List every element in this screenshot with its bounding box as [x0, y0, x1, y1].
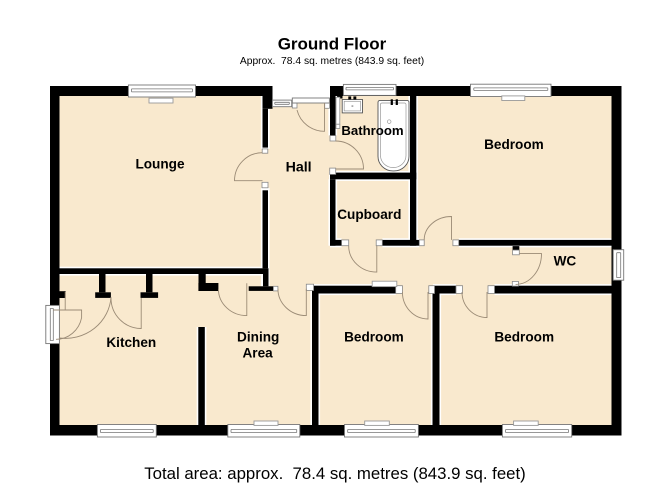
- svg-text:Bathroom: Bathroom: [341, 123, 403, 138]
- svg-text:Dining: Dining: [237, 330, 279, 345]
- svg-text:Bedroom: Bedroom: [484, 137, 544, 152]
- svg-text:Approx. 78.4 sq. metres (843.: Approx. 78.4 sq. metres (843.9 sq. feet): [240, 56, 424, 67]
- svg-text:Bedroom: Bedroom: [494, 330, 554, 345]
- svg-text:Cupboard: Cupboard: [337, 207, 401, 222]
- svg-text:Ground Floor: Ground Floor: [278, 35, 387, 54]
- svg-text:Kitchen: Kitchen: [106, 335, 156, 350]
- svg-text:Area: Area: [242, 345, 273, 360]
- svg-text:WC: WC: [554, 254, 577, 269]
- svg-text:Hall: Hall: [286, 159, 312, 175]
- svg-text:Bedroom: Bedroom: [344, 330, 404, 345]
- svg-text:Total area: approx. 78.4 sq.: Total area: approx. 78.4 sq. metres (843…: [144, 464, 526, 483]
- svg-text:Lounge: Lounge: [135, 156, 185, 171]
